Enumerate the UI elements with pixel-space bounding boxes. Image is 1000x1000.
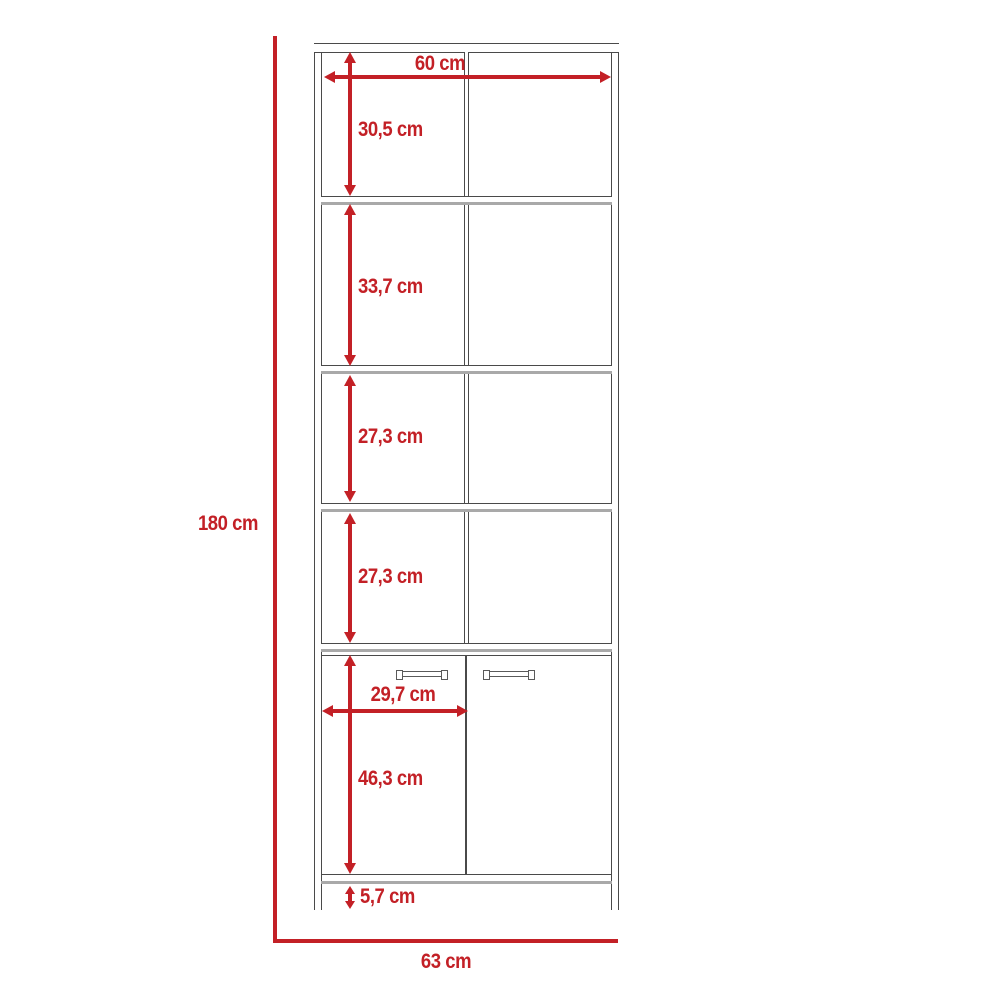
cabinet-shelf-3 [321,503,612,512]
dimension-diagram: 60 cm 30,5 cm 33,7 cm 27,3 cm 27,3 cm 29… [0,0,1000,1000]
dim-label-shelf-4-height: 27,3 cm [358,565,423,589]
left-door-handle [397,671,447,677]
total-height-extent-line [273,36,277,943]
right-door-handle [484,671,534,677]
dim-label-base-width: 63 cm [358,950,534,974]
dim-label-total-height: 180 cm [144,512,258,536]
dim-arrow-shelf-4-height [348,523,352,633]
dim-label-door-width: 29,7 cm [315,683,491,707]
dim-arrow-shelf-1-height [348,62,352,186]
dim-label-interior-width: 60 cm [352,52,528,76]
dim-label-shelf-2-height: 33,7 cm [358,275,423,299]
dim-label-door-height: 46,3 cm [358,767,423,791]
dim-arrow-leg-height [348,893,352,902]
cabinet-shelf-4 [321,643,612,652]
base-width-extent-line [273,939,618,943]
dim-arrow-shelf-2-height [348,214,352,356]
dim-arrow-shelf-3-height [348,385,352,492]
dim-label-shelf-3-height: 27,3 cm [358,425,423,449]
cabinet-shelf-2 [321,365,612,374]
cabinet-bottom-shelf-edge [321,881,612,884]
dim-label-leg-height: 5,7 cm [360,885,415,909]
dim-label-shelf-1-height: 30,5 cm [358,118,423,142]
cabinet-right-post [611,43,619,910]
cabinet-shelf-1 [321,196,612,205]
cabinet-center-divider [464,52,469,644]
